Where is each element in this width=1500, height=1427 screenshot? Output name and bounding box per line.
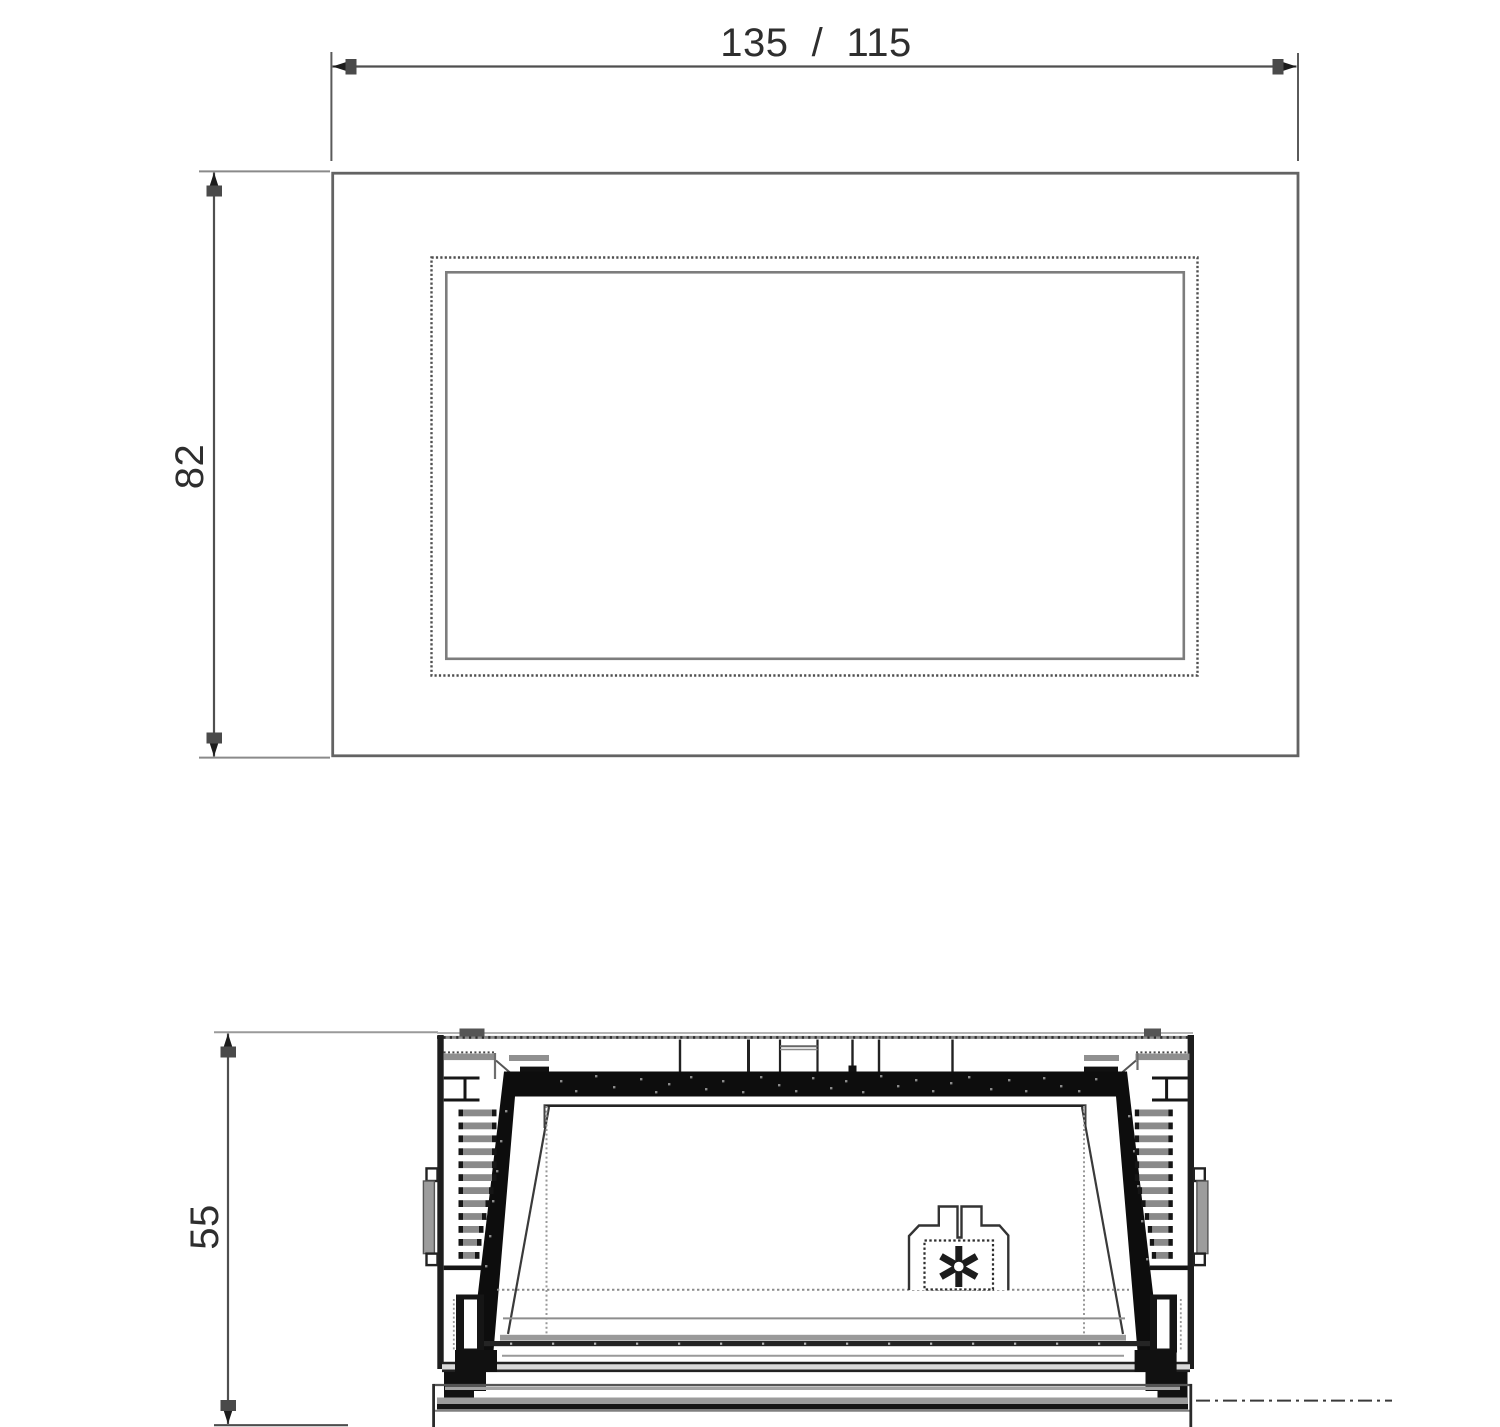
svg-text:135 / 115: 135 / 115 bbox=[720, 21, 912, 65]
svg-text:82: 82 bbox=[168, 444, 212, 490]
svg-text:55: 55 bbox=[183, 1204, 227, 1250]
